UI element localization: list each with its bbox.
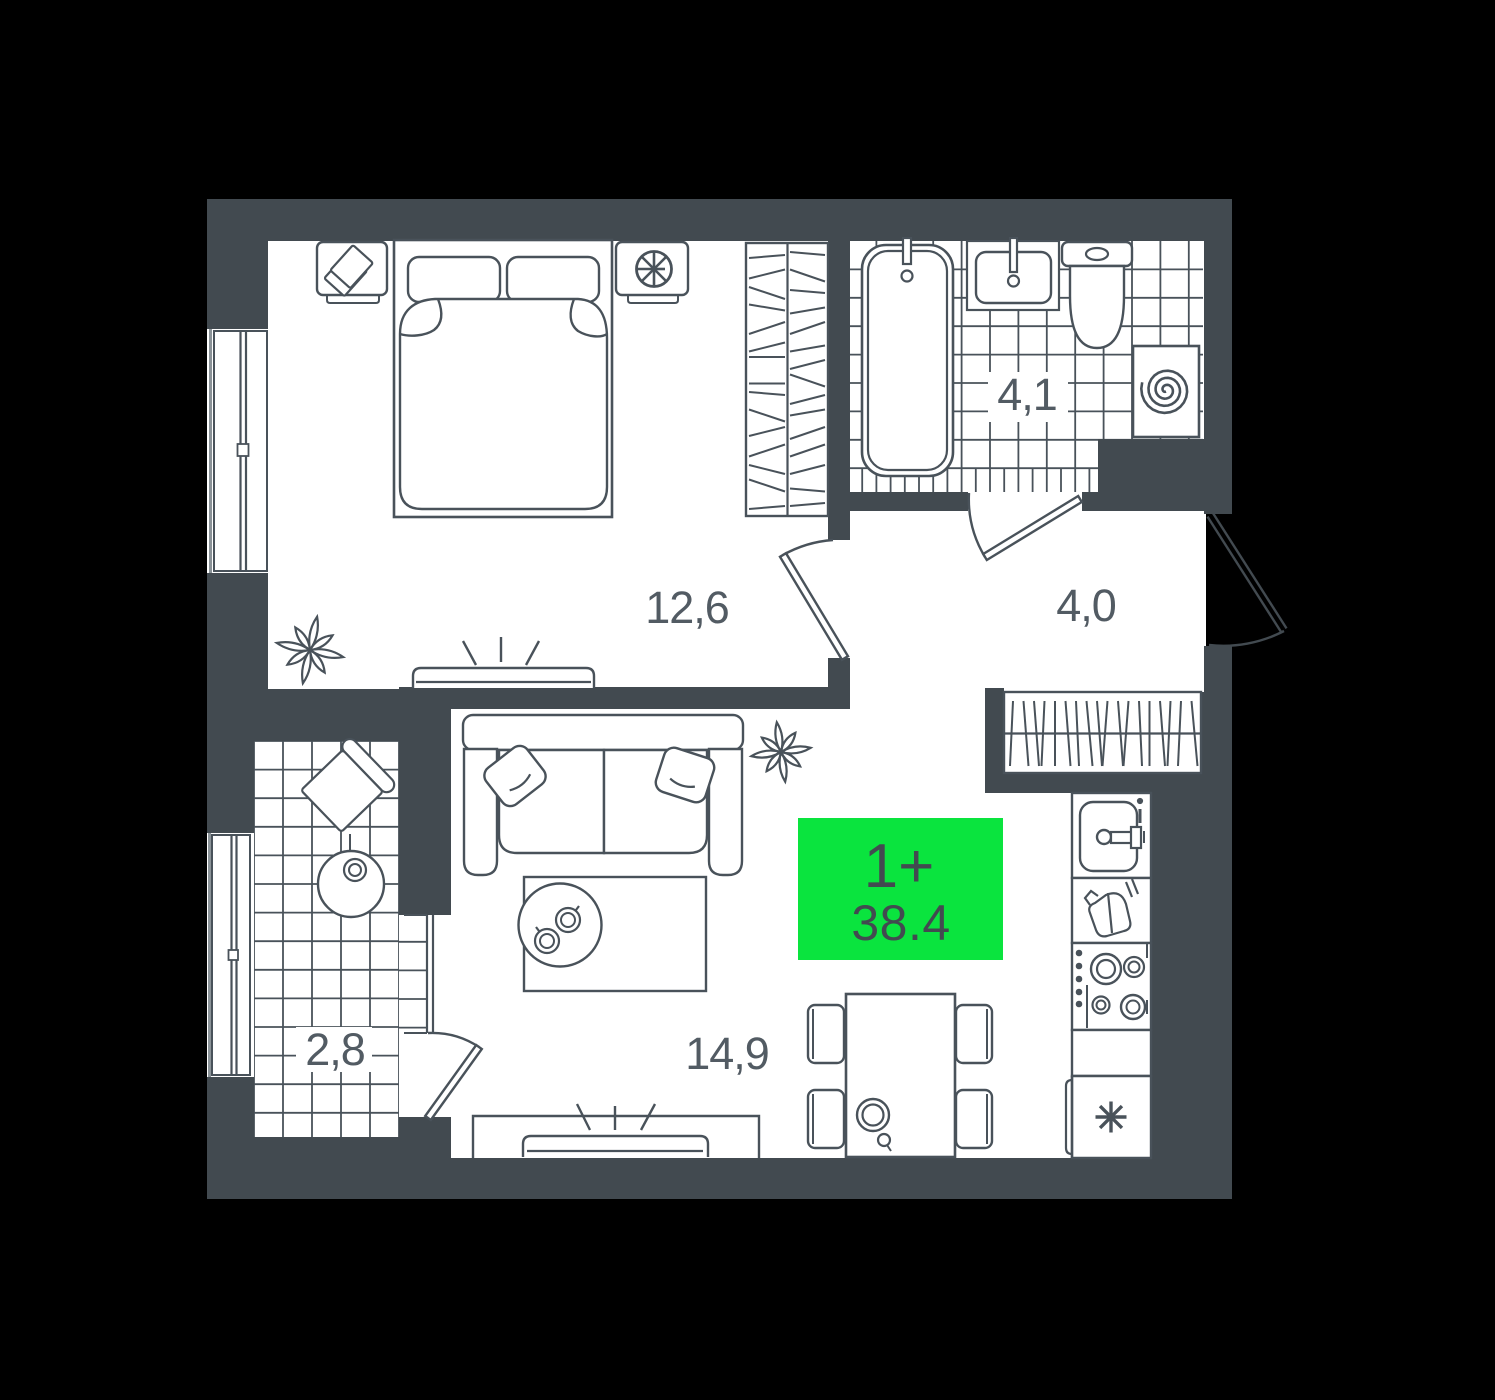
svg-text:12,6: 12,6 xyxy=(645,582,729,633)
svg-text:1+: 1+ xyxy=(864,832,935,901)
svg-text:38.4: 38.4 xyxy=(851,895,950,951)
svg-text:14,9: 14,9 xyxy=(685,1028,769,1079)
svg-text:2,8: 2,8 xyxy=(305,1024,365,1075)
svg-text:4,1: 4,1 xyxy=(997,369,1057,420)
svg-text:4,0: 4,0 xyxy=(1056,580,1116,631)
